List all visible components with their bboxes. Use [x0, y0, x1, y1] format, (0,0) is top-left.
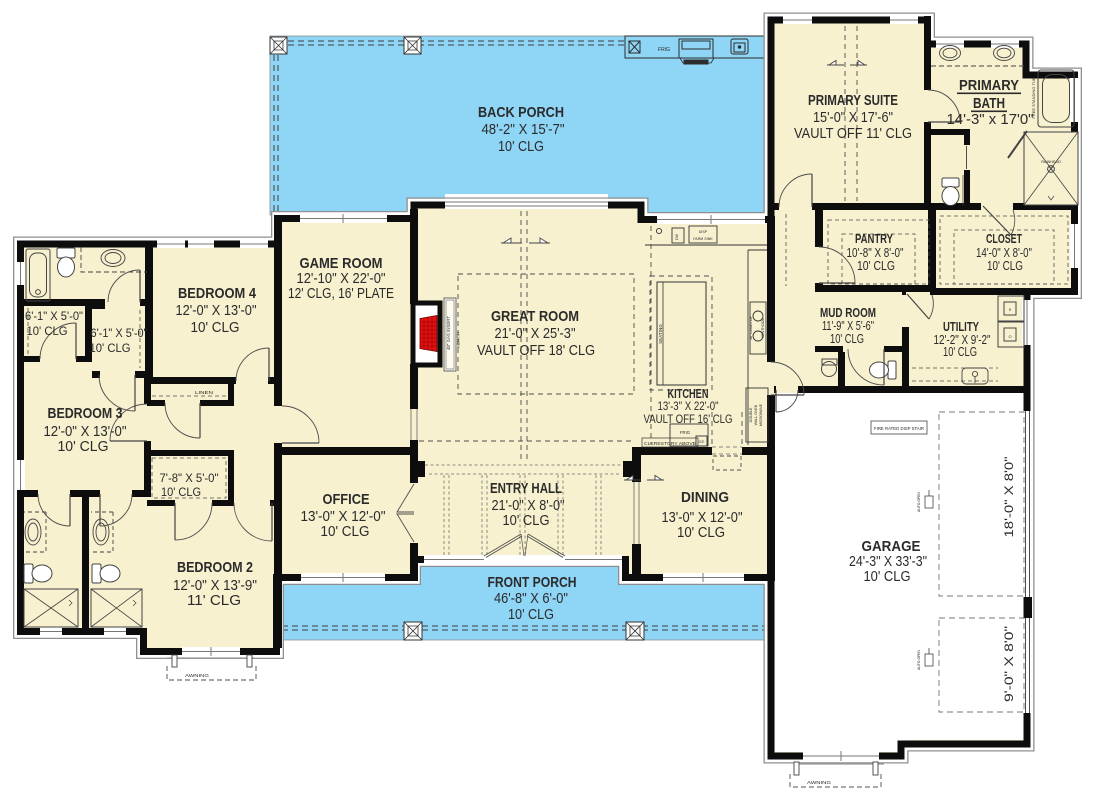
- svg-text:BEDROOM 3: BEDROOM 3: [48, 405, 123, 422]
- svg-text:GAME ROOM: GAME ROOM: [300, 255, 383, 272]
- svg-text:10' CLG: 10' CLG: [498, 139, 544, 155]
- svg-text:BEDROOM 2: BEDROOM 2: [177, 559, 253, 576]
- svg-text:GREAT ROOM: GREAT ROOM: [491, 308, 579, 325]
- svg-text:RAINHEAD: RAINHEAD: [1041, 160, 1061, 164]
- svg-text:7'-8" X 5'-0": 7'-8" X 5'-0": [160, 471, 219, 485]
- svg-text:10' CLG: 10' CLG: [830, 332, 864, 346]
- svg-text:13'-0" X 12'-0": 13'-0" X 12'-0": [301, 509, 386, 525]
- svg-text:DINING: DINING: [681, 489, 729, 506]
- svg-text:21'-0" X 25'-3": 21'-0" X 25'-3": [495, 326, 576, 342]
- svg-text:HEARTH: HEARTH: [456, 332, 461, 348]
- svg-text:11'-9" X 5'-6": 11'-9" X 5'-6": [822, 319, 874, 333]
- svg-text:AUTO OPEN: AUTO OPEN: [917, 492, 921, 512]
- svg-text:O: O: [1008, 334, 1011, 339]
- svg-text:48" COOKTOP: 48" COOKTOP: [749, 315, 753, 340]
- svg-text:BATH: BATH: [973, 95, 1005, 112]
- svg-text:DW: DW: [675, 233, 679, 240]
- svg-text:10' CLG: 10' CLG: [943, 345, 977, 359]
- svg-text:14'-3" x 17'0": 14'-3" x 17'0": [947, 112, 1034, 128]
- svg-text:FRIG: FRIG: [680, 430, 690, 435]
- svg-text:FIRE RATED DISP STAIR: FIRE RATED DISP STAIR: [874, 426, 924, 431]
- svg-text:VAULT OFF 11' CLG: VAULT OFF 11' CLG: [794, 126, 912, 142]
- svg-text:48" GAS INSERT: 48" GAS INSERT: [446, 316, 451, 350]
- svg-text:12'-0" X 13'-0": 12'-0" X 13'-0": [44, 424, 127, 440]
- svg-text:12'-0" X 13'-9": 12'-0" X 13'-9": [173, 578, 257, 594]
- svg-text:PRIMARY: PRIMARY: [959, 77, 1019, 94]
- svg-text:6'-1" X 5'-0": 6'-1" X 5'-0": [91, 326, 148, 340]
- svg-text:10' CLG: 10' CLG: [677, 525, 725, 541]
- svg-text:48'-2" X 15'-7": 48'-2" X 15'-7": [482, 122, 565, 138]
- svg-text:CLOSET: CLOSET: [986, 231, 1022, 246]
- svg-text:PRIMARY SUITE: PRIMARY SUITE: [808, 92, 898, 109]
- svg-text:18'-0" X 8'0": 18'-0" X 8'0": [1002, 457, 1016, 538]
- svg-text:11' CLG: 11' CLG: [187, 593, 241, 609]
- svg-text:WALL OVEN: WALL OVEN: [754, 404, 758, 425]
- svg-text:VAULT OFF 18' CLG: VAULT OFF 18' CLG: [477, 343, 595, 359]
- svg-text:FRIG: FRIG: [658, 47, 670, 53]
- svg-text:9'-0" X 8'0": 9'-0" X 8'0": [1002, 626, 1016, 702]
- svg-text:10' CLG: 10' CLG: [321, 524, 370, 540]
- svg-text:FARM SINK: FARM SINK: [693, 237, 713, 241]
- svg-text:46'-8" X 6'-0": 46'-8" X 6'-0": [494, 591, 568, 607]
- svg-text:MICROWAVE: MICROWAVE: [759, 403, 763, 426]
- svg-text:10' CLG: 10' CLG: [27, 324, 68, 338]
- svg-text:10' CLG: 10' CLG: [508, 607, 554, 623]
- svg-text:BEDROOM 4: BEDROOM 4: [178, 285, 257, 302]
- svg-text:10' CLG: 10' CLG: [503, 513, 550, 529]
- svg-text:10'-8" X 8'-0": 10'-8" X 8'-0": [847, 246, 904, 260]
- svg-text:DISP: DISP: [699, 230, 708, 234]
- svg-text:14'-0" X 8'-0": 14'-0" X 8'-0": [976, 246, 1032, 260]
- svg-text:10' CLG: 10' CLG: [987, 259, 1023, 273]
- svg-text:12'-10" X 22'-0": 12'-10" X 22'-0": [297, 271, 386, 287]
- svg-text:SEATING: SEATING: [658, 324, 663, 344]
- svg-text:12'-0" X 13'-0": 12'-0" X 13'-0": [176, 303, 257, 319]
- svg-text:ENTRY HALL: ENTRY HALL: [490, 480, 562, 497]
- svg-text:10' CLG: 10' CLG: [857, 259, 895, 273]
- svg-text:VAULT OFF 16' CLG: VAULT OFF 16' CLG: [644, 412, 733, 426]
- svg-text:UTILITY: UTILITY: [943, 319, 979, 334]
- svg-text:10' CLG: 10' CLG: [90, 341, 131, 355]
- svg-text:13'-3" X 22'-0": 13'-3" X 22'-0": [658, 399, 719, 413]
- svg-text:12' CLG, 16' PLATE: 12' CLG, 16' PLATE: [288, 286, 394, 302]
- svg-text:10' CLG: 10' CLG: [161, 485, 201, 499]
- svg-text:GARAGE: GARAGE: [862, 538, 921, 555]
- svg-text:10' CLG: 10' CLG: [191, 320, 240, 336]
- svg-text:AUTO OPEN: AUTO OPEN: [917, 650, 921, 670]
- svg-text:LINEN: LINEN: [195, 390, 214, 396]
- svg-text:6'-1" X 5'-0": 6'-1" X 5'-0": [25, 309, 83, 323]
- svg-text:BACK PORCH: BACK PORCH: [478, 104, 564, 121]
- svg-text:AWNING: AWNING: [807, 780, 832, 785]
- svg-text:MUD ROOM: MUD ROOM: [820, 305, 876, 320]
- svg-text:CLERESTORY ABOVE: CLERESTORY ABOVE: [644, 441, 696, 446]
- svg-text:10' CLG: 10' CLG: [58, 439, 109, 455]
- svg-text:FRONT PORCH: FRONT PORCH: [488, 574, 577, 591]
- svg-text:VENTHOOD: VENTHOOD: [761, 317, 765, 338]
- svg-text:DOUBLE: DOUBLE: [749, 407, 753, 422]
- svg-text:24'-3" X 33'-3": 24'-3" X 33'-3": [849, 554, 927, 570]
- svg-text:10' CLG: 10' CLG: [864, 569, 911, 585]
- svg-text:OFFICE: OFFICE: [323, 491, 370, 508]
- svg-text:PANTRY: PANTRY: [855, 231, 893, 246]
- svg-text:AWNING: AWNING: [185, 673, 210, 678]
- svg-text:ICE: ICE: [699, 440, 705, 444]
- svg-text:S: S: [1009, 307, 1012, 312]
- svg-text:21'-0" X 8'-0": 21'-0" X 8'-0": [492, 498, 565, 514]
- svg-text:15'-0" X 17'-6": 15'-0" X 17'-6": [813, 110, 893, 126]
- svg-text:13'-0" X 12'-0": 13'-0" X 12'-0": [662, 510, 743, 526]
